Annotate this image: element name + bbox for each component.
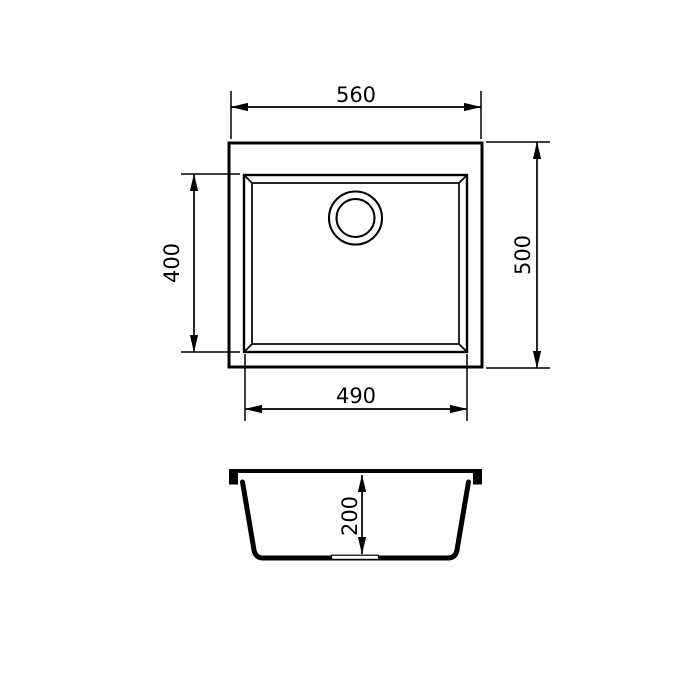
dimension-label-bowl-depth: 400	[160, 243, 184, 283]
dimension-bowl-height: 200	[338, 475, 362, 554]
dimension-label-bowl-height: 200	[338, 496, 362, 536]
bowl-inner-outline	[252, 183, 459, 344]
dimension-label-overall-depth: 500	[511, 235, 535, 275]
bowl-corner-bevel-bottom-right	[459, 344, 467, 352]
dimension-label-bowl-width: 490	[336, 384, 376, 408]
dimension-overall-depth: 500	[486, 142, 550, 368]
sink-outer-outline	[229, 143, 482, 367]
bowl-rim-outline	[244, 175, 467, 352]
technical-drawing-canvas: 560 500 400 490	[0, 0, 700, 700]
dimension-label-overall-width: 560	[336, 83, 376, 107]
section-view: 200	[229, 470, 482, 559]
section-drain-outlet	[332, 555, 379, 559]
drain-inner-circle	[337, 199, 375, 237]
section-left-flange-lip	[229, 470, 238, 485]
dimension-bowl-width: 490	[245, 354, 467, 421]
dimension-overall-width: 560	[231, 83, 481, 139]
sink-dimension-diagram: 560 500 400 490	[0, 0, 700, 700]
top-view	[229, 143, 482, 367]
section-right-flange-lip	[473, 470, 482, 485]
